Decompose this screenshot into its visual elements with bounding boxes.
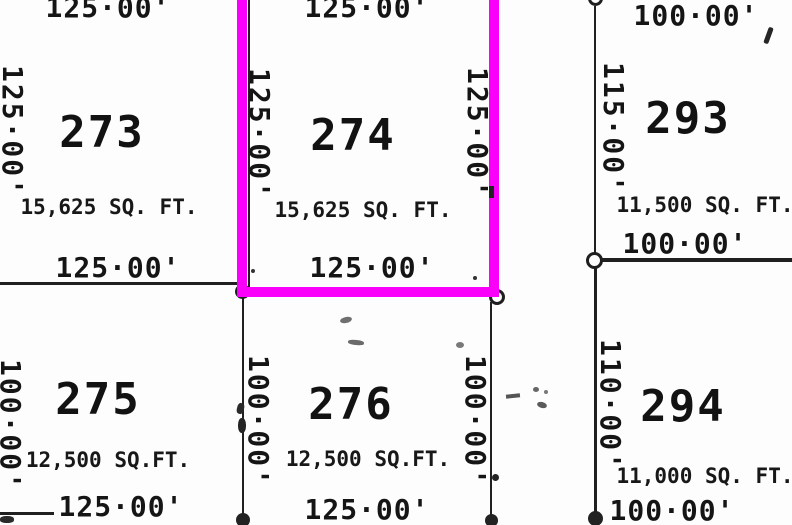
dim-275-bottom: 125·00' <box>51 492 191 522</box>
dim-274-bottom: 125·00' <box>302 253 442 283</box>
dim-276-bottom: 125·00' <box>297 495 437 525</box>
scan-mark-street-dot-3 <box>536 401 547 409</box>
dim-273-left: 125·00' <box>0 65 26 195</box>
scan-dot-corner-right <box>473 276 477 280</box>
scan-dot-line276 <box>492 474 499 481</box>
corner-marker-bottom-294 <box>588 511 603 525</box>
dim-274-right: 125·00' <box>463 67 491 197</box>
lot-area-293: 11,500 SQ. FT. <box>605 193 792 217</box>
dim-274-top: 125·00' <box>297 0 437 23</box>
lot-number-276: 276 <box>281 382 421 428</box>
corner-marker-293-294 <box>586 252 603 269</box>
highlight-border-bottom <box>237 287 499 297</box>
dim-273-top: 125·00' <box>38 0 178 23</box>
lot-number-275: 275 <box>28 377 168 423</box>
corner-marker-bottom-275 <box>236 513 250 525</box>
lot-area-273: 15,625 SQ. FT. <box>9 195 209 219</box>
dim-293-top: 100·00' <box>626 1 766 31</box>
lot-number-274: 274 <box>283 113 423 159</box>
lot-area-275: 12,500 SQ.FT. <box>8 448 208 472</box>
lot-number-294: 294 <box>613 384 753 430</box>
scan-mark-street-dot-2 <box>544 390 548 394</box>
dim-294-bottom: 100·00' <box>602 496 742 525</box>
dim-293-bottom: 100·00' <box>615 229 755 259</box>
scan-smudge-276-c <box>456 342 464 348</box>
dim-275-left: 100·00' <box>0 359 24 489</box>
dim-273-bottom: 125·00' <box>48 253 188 283</box>
dim-276-left: 100·00' <box>244 355 272 485</box>
dim-274-left: 125·00' <box>245 68 273 198</box>
scan-mark-street-dash <box>506 393 520 398</box>
scan-blob-bottom-left <box>0 516 14 523</box>
boundary-line-293-upper <box>594 6 596 253</box>
dim-294-left: 110·00' <box>596 339 624 469</box>
dim-276-right: 100·00' <box>461 355 489 485</box>
plat-map: 273 15,625 SQ. FT. 125·00' 125·00' 125·0… <box>0 0 792 525</box>
lot-number-293: 293 <box>618 96 758 142</box>
lot-area-274: 15,625 SQ. FT. <box>263 198 463 222</box>
lot-area-294: 11,000 SQ. FT. <box>605 464 792 488</box>
corner-marker-bottom-276 <box>485 514 498 525</box>
scan-dot-corner-left <box>251 269 255 273</box>
lot-area-276: 12,500 SQ.FT. <box>268 447 468 471</box>
scan-mark-street-dot-1 <box>533 387 539 392</box>
lot-number-273: 273 <box>32 110 172 156</box>
boundary-line-corner-bottom-left <box>0 512 54 515</box>
dim-293-left: 115·00' <box>599 62 627 192</box>
